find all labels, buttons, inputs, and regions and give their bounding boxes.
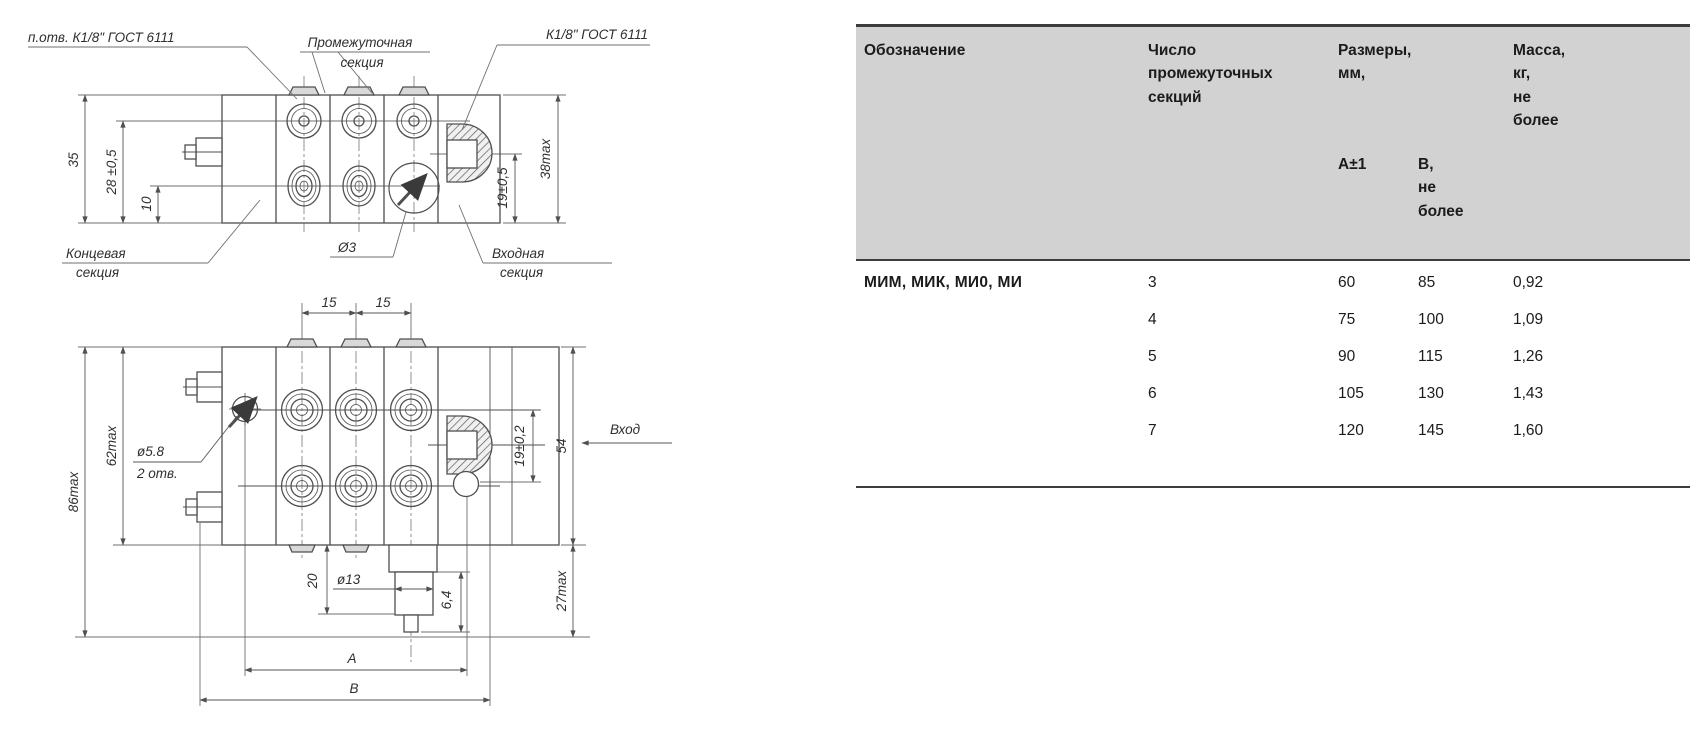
front-inlet-boss <box>447 416 492 497</box>
cell-dim-b: 100 <box>1418 312 1513 328</box>
cell-mass: 1,43 <box>1513 386 1690 402</box>
header-sections-count: Число промежуточных секций <box>1148 39 1338 223</box>
cell-mass: 0,92 <box>1513 275 1690 291</box>
spec-table-header: Обозначение Число промежуточных секций Р… <box>856 24 1690 261</box>
dim-19-05: 19±0,5 <box>495 167 510 209</box>
inlet-flow-label: Вход <box>610 422 641 437</box>
cell-dim-a: 60 <box>1338 275 1418 291</box>
dim-20: 20 <box>305 573 320 590</box>
cell-dim-a: 105 <box>1338 386 1418 402</box>
front-view-dimensions <box>85 313 672 700</box>
table-row: 4 75 100 1,09 <box>856 312 1690 349</box>
front-fittings <box>282 390 432 507</box>
dim-6-4: 6,4 <box>439 591 454 610</box>
top-view: 35 28 ±0,5 10 19±0,5 38max п.отв. К1/8" … <box>28 27 650 280</box>
dim-38max: 38max <box>538 137 553 179</box>
designation-value: МИМ, МИК, МИ0, МИ <box>856 275 1148 291</box>
cell-dim-a: 75 <box>1338 312 1418 328</box>
cell-mass: 1,09 <box>1513 312 1690 328</box>
cell-sections: 6 <box>1148 386 1338 402</box>
cell-dim-a: 90 <box>1338 349 1418 365</box>
cell-sections: 5 <box>1148 349 1338 365</box>
tap-hole-note: п.отв. К1/8" ГОСТ 6111 <box>28 30 174 45</box>
dim-10: 10 <box>139 196 154 212</box>
dim-28: 28 ±0,5 <box>104 149 119 195</box>
cell-sections: 7 <box>1148 423 1338 439</box>
cell-sections: 3 <box>1148 275 1338 291</box>
inlet-boss <box>447 124 492 182</box>
cell-dim-b: 145 <box>1418 423 1513 439</box>
side-bolt <box>182 138 222 166</box>
mount-hole-dia-note: ø5.8 <box>137 444 165 459</box>
cell-dim-b: 115 <box>1418 349 1513 365</box>
cell-mass: 1,26 <box>1513 349 1690 365</box>
dim-a-label: A <box>346 651 356 666</box>
front-view: 15 15 86max 62max 19±0,2 54 27max 20 6,4… <box>66 295 672 706</box>
header-dim-a: А±1 <box>1338 153 1418 223</box>
front-caps <box>287 339 426 552</box>
dim-35: 35 <box>66 152 81 168</box>
table-row: 5 90 115 1,26 <box>856 349 1690 386</box>
dim-pitch-2: 15 <box>375 295 391 310</box>
dim-54: 54 <box>554 438 569 453</box>
front-view-extension-lines <box>75 303 590 706</box>
end-section-label-2: секция <box>76 265 119 280</box>
header-designation: Обозначение <box>856 39 1148 223</box>
intermediate-section-label-1: Промежуточная <box>308 35 413 50</box>
intermediate-section-label-2: секция <box>340 55 383 70</box>
outlet-dia-note: ø13 <box>337 572 361 587</box>
inlet-thread-note: К1/8" ГОСТ 6111 <box>546 27 648 42</box>
technical-drawing: 35 28 ±0,5 10 19±0,5 38max п.отв. К1/8" … <box>0 0 800 744</box>
header-dim-b: В, не более <box>1418 153 1513 223</box>
dim-62max: 62max <box>104 424 119 466</box>
cell-dim-b: 85 <box>1418 275 1513 291</box>
top-view-callouts: п.отв. К1/8" ГОСТ 6111 Промежуточная сек… <box>28 27 650 280</box>
end-section-label-1: Концевая <box>66 246 126 261</box>
dim-b-label: B <box>349 681 358 696</box>
dia3-note: Ø3 <box>337 240 357 255</box>
manifold-block <box>222 347 559 545</box>
inlet-section-label-2: секция <box>500 265 543 280</box>
dim-27max: 27max <box>554 569 569 612</box>
spec-table: Обозначение Число промежуточных секций Р… <box>856 24 1690 488</box>
header-dimensions: Размеры, мм, <box>1338 39 1513 153</box>
dim-19-02: 19±0,2 <box>512 425 527 467</box>
spec-table-body: МИМ, МИК, МИ0, МИ 3 60 85 0,92 4 75 100 … <box>856 261 1690 488</box>
cell-mass: 1,60 <box>1513 423 1690 439</box>
cell-dim-a: 120 <box>1338 423 1418 439</box>
mount-bolts <box>183 372 222 522</box>
table-row: 6 105 130 1,43 <box>856 386 1690 423</box>
mount-hole-qty-note: 2 отв. <box>136 466 178 481</box>
cell-dim-b: 130 <box>1418 386 1513 402</box>
dim-86max: 86max <box>66 470 81 512</box>
inlet-section-label-1: Входная <box>492 246 544 261</box>
top-caps <box>289 87 429 95</box>
cell-sections: 4 <box>1148 312 1338 328</box>
table-row: 7 120 145 1,60 <box>856 423 1690 460</box>
page: 35 28 ±0,5 10 19±0,5 38max п.отв. К1/8" … <box>0 0 1705 744</box>
outlet-fitting <box>389 545 437 632</box>
top-view-center-lines <box>304 76 414 232</box>
dim-pitch-1: 15 <box>321 295 337 310</box>
header-mass: Масса, кг, не более <box>1513 39 1690 223</box>
table-row: МИМ, МИК, МИ0, МИ 3 60 85 0,92 <box>856 275 1690 312</box>
